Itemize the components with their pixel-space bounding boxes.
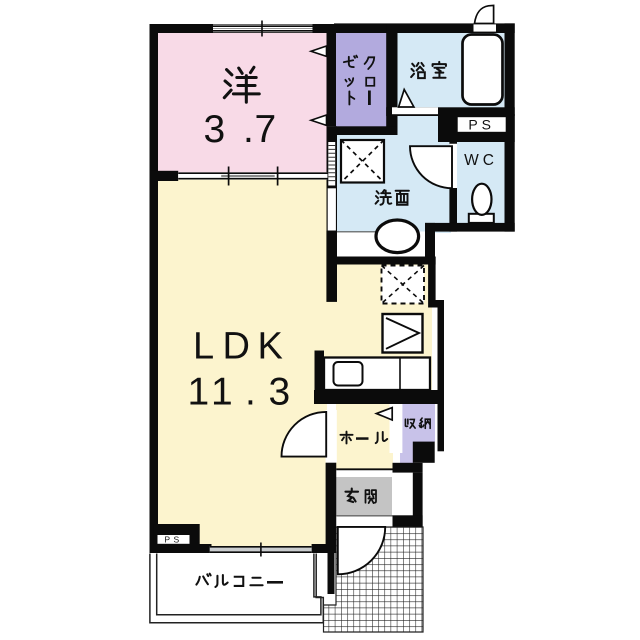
svg-text:K: K [258,326,283,368]
svg-text:7: 7 [255,108,277,151]
svg-text:PS: PS [468,117,495,133]
svg-text:PS: PS [164,534,182,544]
svg-text:1: 1 [188,371,210,414]
svg-text:3: 3 [269,371,291,414]
svg-text:WC: WC [464,152,498,169]
svg-text:.: . [243,108,254,151]
svg-text:1: 1 [211,371,233,414]
svg-text:3: 3 [204,108,226,151]
svg-text:.: . [245,371,256,414]
svg-text:D: D [223,326,250,368]
svg-text:L: L [193,326,214,368]
